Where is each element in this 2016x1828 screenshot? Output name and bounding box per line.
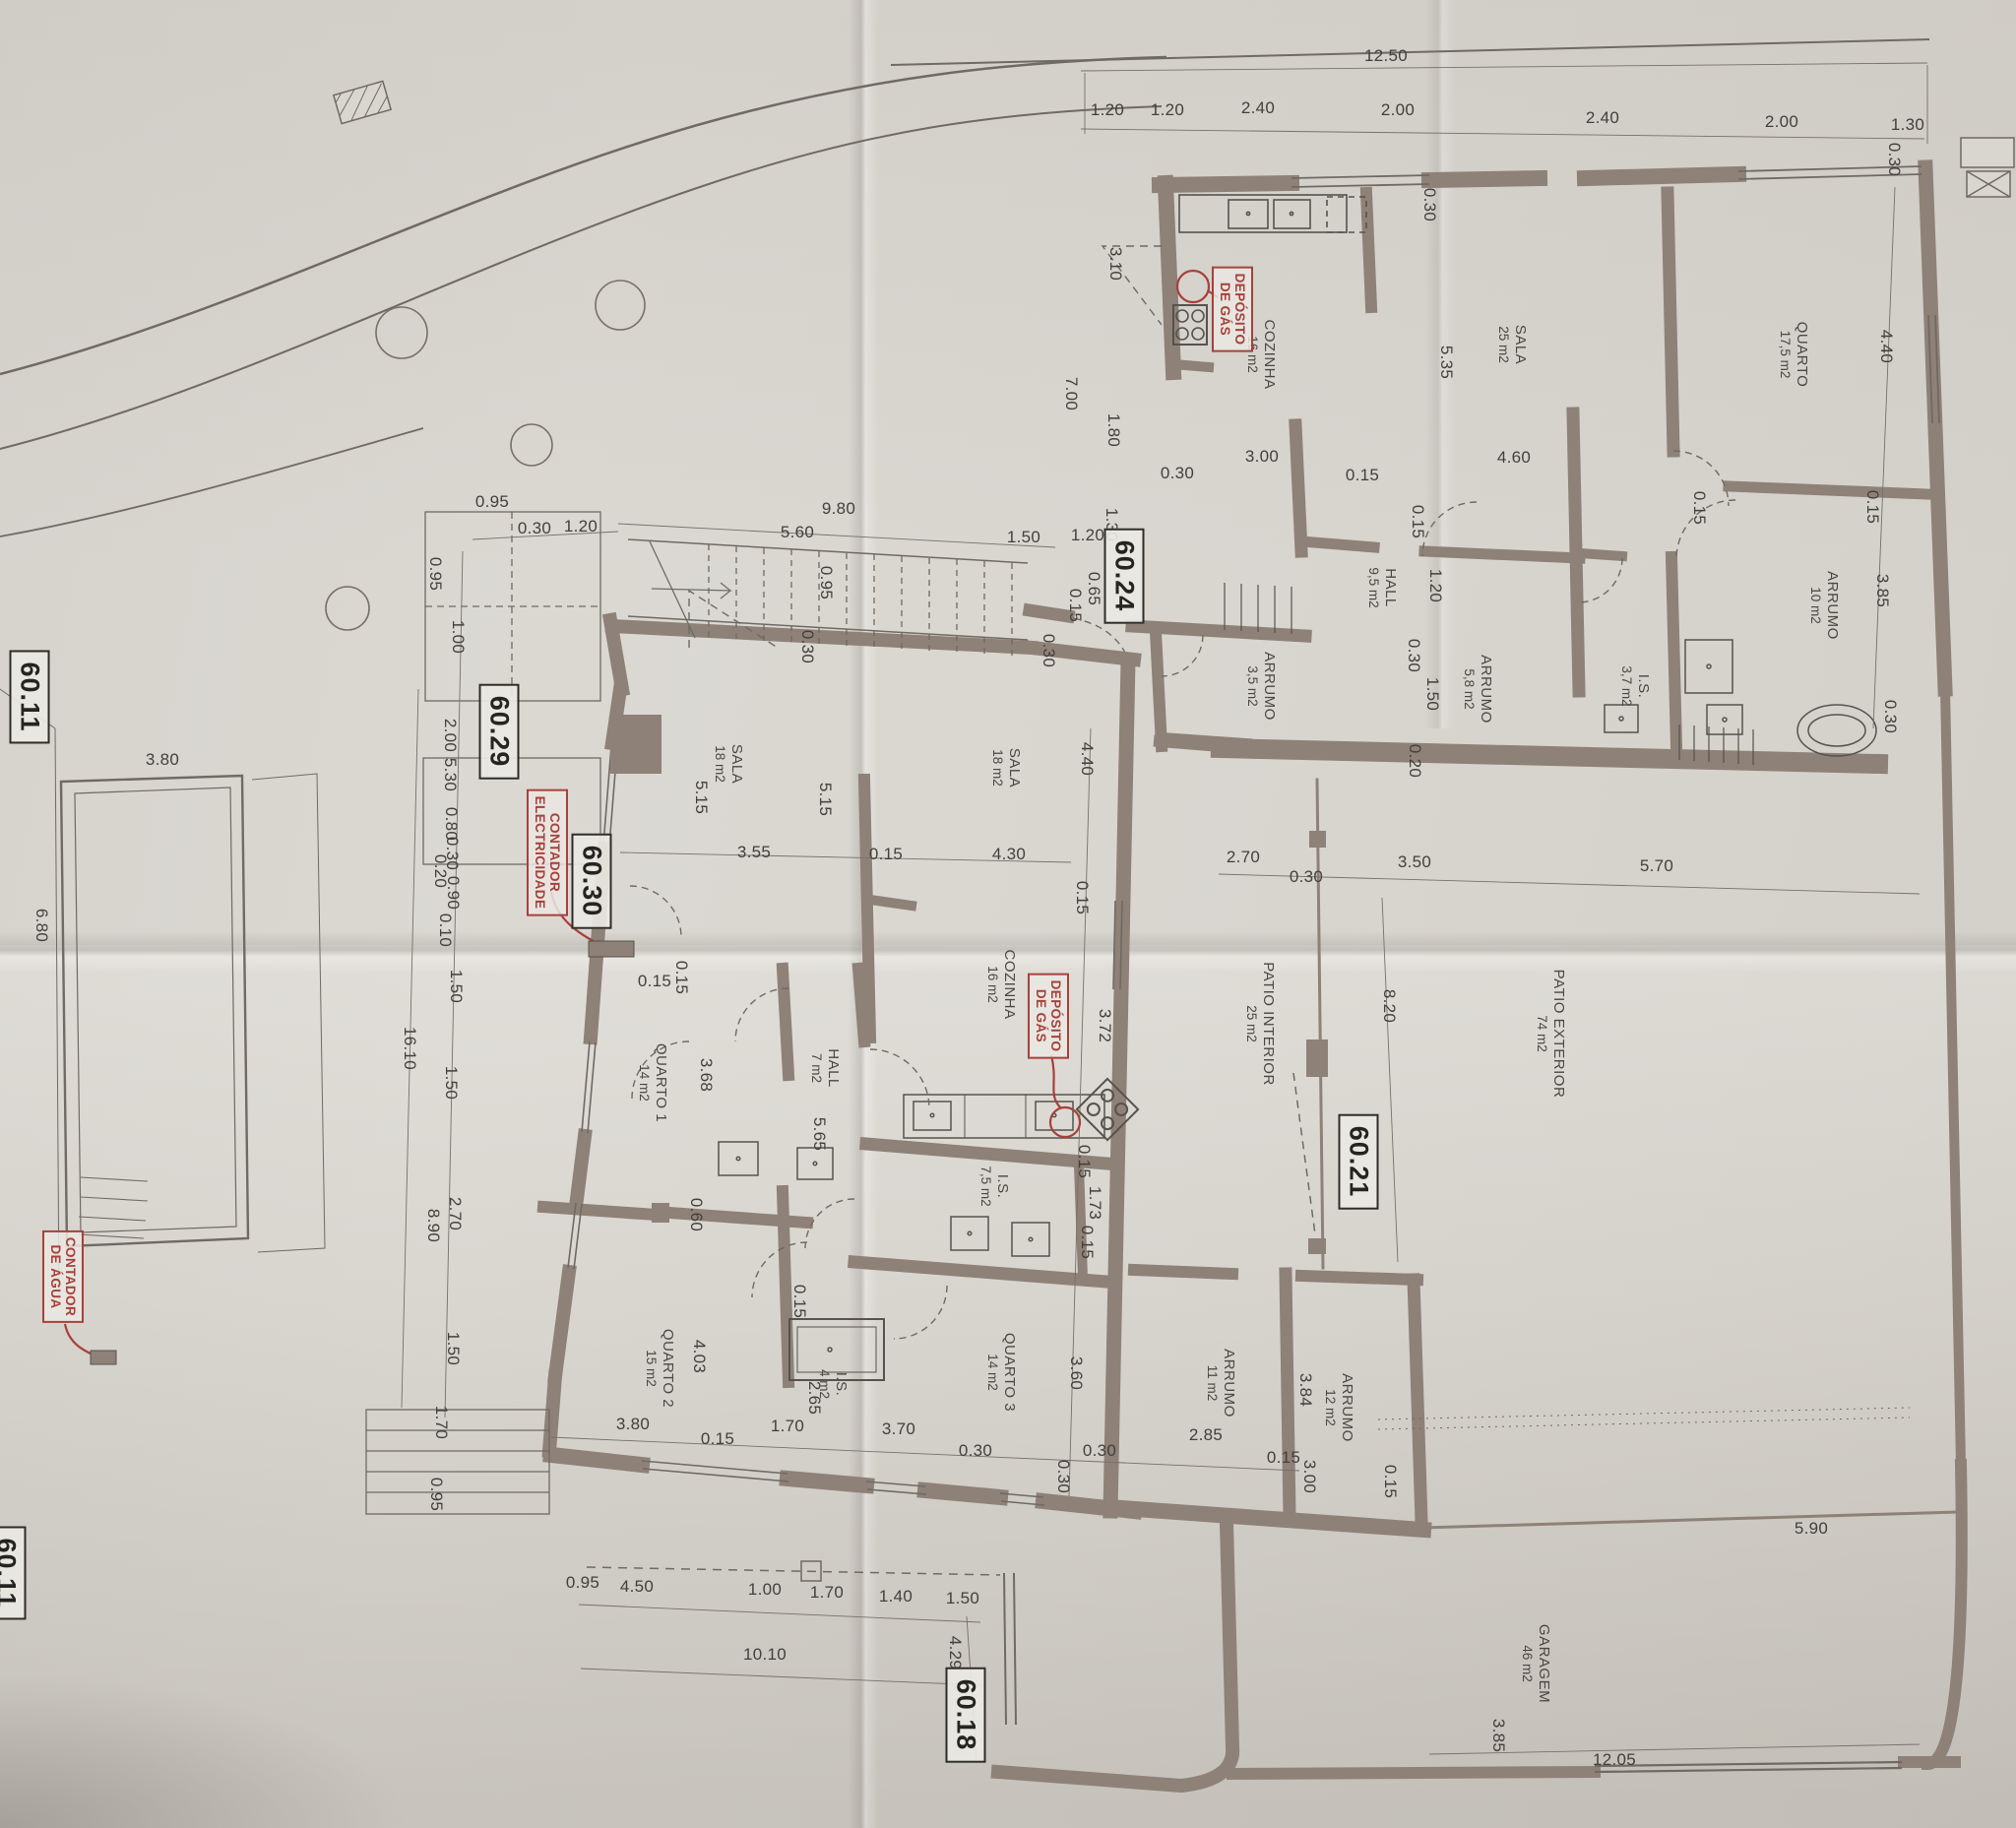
dimension-label: 2.40 xyxy=(1586,108,1619,128)
room-label-quarto: QUARTO17,5 m2 xyxy=(1777,322,1810,388)
room-area: 7 m2 xyxy=(808,1048,825,1088)
dimension-label: 1.50 xyxy=(946,1589,979,1608)
dimension-label: 0.30 xyxy=(797,630,817,663)
dimension-label: 16.10 xyxy=(400,1027,419,1070)
dimension-label: 0.15 xyxy=(1267,1448,1300,1468)
dimension-label: 9.80 xyxy=(822,499,855,519)
dimension-label: 0.15 xyxy=(1077,1226,1097,1259)
dimension-label: 1.40 xyxy=(879,1587,913,1607)
dimension-label: 0.20 xyxy=(1405,744,1424,778)
dimension-label: 3.85 xyxy=(1488,1719,1508,1752)
dimension-label: 0.95 xyxy=(425,557,445,591)
dimension-label: 0.30 xyxy=(1039,634,1058,667)
ref-marker-60-29: 60.29 xyxy=(479,684,520,780)
room-area: 18 m2 xyxy=(712,744,728,784)
red-annotation-contador-electricidade: CONTADORELECTRICIDADE xyxy=(527,789,568,916)
dimension-label: 0.15 xyxy=(1380,1465,1400,1498)
dimension-label: 0.15 xyxy=(869,845,903,864)
dimension-label: 1.50 xyxy=(443,1332,463,1365)
room-name: ARRUMO xyxy=(1339,1373,1355,1442)
room-label-arrumo: ARRUMO12 m2 xyxy=(1322,1373,1355,1442)
dimension-label: 0.30 xyxy=(1161,464,1194,483)
dimension-label: 3.85 xyxy=(1872,574,1892,607)
room-name: I.S. xyxy=(994,1166,1011,1206)
dimension-label: 3.72 xyxy=(1095,1009,1114,1042)
dimension-label: 0.60 xyxy=(686,1198,706,1231)
room-name: QUARTO 2 xyxy=(660,1329,676,1408)
dimension-label: 1.20 xyxy=(1091,100,1124,120)
dimension-label: 0.15 xyxy=(1074,1145,1094,1178)
room-area: 25 m2 xyxy=(1495,325,1512,364)
room-area: 18 m2 xyxy=(989,748,1006,788)
dimension-label: 10.10 xyxy=(743,1645,787,1665)
dimension-label: 0.30 xyxy=(1404,639,1423,672)
dimension-label: 3.55 xyxy=(737,843,771,862)
room-name: QUARTO 1 xyxy=(653,1043,669,1122)
room-area: 3,5 m2 xyxy=(1244,652,1261,721)
dimension-label: 1.00 xyxy=(748,1580,782,1600)
dimension-label: 5.35 xyxy=(1436,346,1456,379)
dimension-label: 3.70 xyxy=(882,1419,915,1439)
dimension-label: 0.15 xyxy=(1072,881,1092,914)
room-area: 3,7 m2 xyxy=(1618,665,1635,706)
room-name: SALA xyxy=(1512,325,1529,364)
dimension-label: 3.68 xyxy=(696,1058,716,1092)
dimension-label: 1.70 xyxy=(810,1583,844,1603)
room-label-garagem: GARAGEM46 m2 xyxy=(1519,1624,1552,1703)
red-annotation-line1: CONTADOR xyxy=(63,1237,78,1316)
room-name: I.S. xyxy=(1635,665,1652,706)
room-label-patio-exterior: PATIO EXTERIOR74 m2 xyxy=(1534,970,1567,1099)
dimension-label: 1.73 xyxy=(1085,1186,1104,1220)
room-label-quarto-2: QUARTO 215 m2 xyxy=(643,1329,676,1408)
room-label-hall: HALL9,5 m2 xyxy=(1365,567,1399,607)
room-area: 12 m2 xyxy=(1322,1373,1339,1442)
dimension-label: 1.80 xyxy=(1103,413,1123,447)
room-area: 14 m2 xyxy=(636,1043,653,1122)
room-label-sala: SALA25 m2 xyxy=(1495,325,1529,364)
dimension-label: 1.20 xyxy=(564,517,598,536)
dimension-label: 5.90 xyxy=(1795,1519,1828,1539)
room-label-sala: SALA18 m2 xyxy=(712,744,745,784)
room-label-arrumo: ARRUMO3,5 m2 xyxy=(1244,652,1278,721)
dimension-label: 0.65 xyxy=(1084,572,1103,605)
dimension-label: 0.15 xyxy=(1346,466,1379,485)
room-label-patio-interior: PATIO INTERIOR25 m2 xyxy=(1243,962,1277,1086)
dimension-label: 0.30 xyxy=(1053,1460,1073,1493)
dimension-label: 4.40 xyxy=(1077,742,1097,776)
dimension-label: 0.90 xyxy=(443,876,463,910)
dimension-label: 0.15 xyxy=(638,972,671,991)
dimension-label: 2.00 xyxy=(1381,100,1415,120)
dimension-label: 6.80 xyxy=(31,909,51,942)
dimension-label: 2.70 xyxy=(445,1197,465,1230)
dimension-label: 0.30 xyxy=(959,1441,992,1461)
room-area: 16 m2 xyxy=(984,950,1001,1020)
red-annotation-line2: DE ÁGUA xyxy=(48,1237,63,1316)
room-area: 9,5 m2 xyxy=(1365,567,1382,607)
room-label-quarto-1: QUARTO 114 m2 xyxy=(636,1043,669,1122)
ref-marker-60-11: 60.11 xyxy=(0,1526,27,1619)
dimension-label: 1.50 xyxy=(446,970,466,1003)
room-name: COZINHA xyxy=(1261,320,1278,390)
red-annotation-line2: DE GÁS xyxy=(1218,274,1232,346)
room-area: 4 m2 xyxy=(816,1369,833,1399)
dimension-label: 0.30 xyxy=(1083,1441,1116,1461)
room-label-quarto-3: QUARTO 314 m2 xyxy=(984,1333,1018,1412)
ref-marker-60-21: 60.21 xyxy=(1339,1114,1379,1210)
room-label-cozinha: COZINHA16 m2 xyxy=(984,950,1018,1020)
dimension-label: 3.00 xyxy=(1245,447,1279,467)
room-label-i-s: I.S.4 m2 xyxy=(816,1369,850,1399)
room-name: HALL xyxy=(825,1048,842,1088)
dimension-label: 4.40 xyxy=(1876,330,1896,363)
room-label-hall: HALL7 m2 xyxy=(808,1048,842,1088)
room-name: QUARTO xyxy=(1794,322,1810,388)
room-area: 14 m2 xyxy=(984,1333,1001,1412)
dimension-label: 5.60 xyxy=(781,523,814,542)
dimension-label: 3.10 xyxy=(1105,247,1125,281)
room-name: ARRUMO xyxy=(1824,571,1841,640)
dimension-label: 3.80 xyxy=(146,750,179,770)
dimension-label: 0.30 xyxy=(1290,867,1323,887)
dimension-label: 1.00 xyxy=(448,620,468,654)
dimension-label: 4.50 xyxy=(620,1577,654,1597)
dimension-label: 0.30 xyxy=(518,519,551,538)
room-name: ARRUMO xyxy=(1221,1349,1237,1418)
dimension-label: 4.30 xyxy=(992,845,1026,864)
dimension-label: 0.95 xyxy=(566,1573,599,1593)
room-name: ARRUMO xyxy=(1261,652,1278,721)
room-name: SALA xyxy=(1006,748,1023,788)
dimension-label: 5.65 xyxy=(809,1117,829,1151)
room-area: 7,5 m2 xyxy=(977,1166,994,1206)
dimension-label: 3.00 xyxy=(1299,1460,1319,1493)
room-name: ARRUMO xyxy=(1478,655,1494,724)
dimension-label: 5.15 xyxy=(691,781,711,814)
room-area: 46 m2 xyxy=(1519,1624,1536,1703)
dimension-label: 3.60 xyxy=(1066,1356,1086,1390)
room-label-sala: SALA18 m2 xyxy=(989,748,1023,788)
dimension-label: 3.80 xyxy=(616,1415,650,1434)
dimension-label: 0.30 xyxy=(1884,143,1904,176)
dimension-label: 1.50 xyxy=(441,1066,461,1100)
dimension-label: 0.15 xyxy=(1689,491,1709,525)
room-name: I.S. xyxy=(833,1369,850,1399)
dimension-label: 4.29 xyxy=(945,1636,965,1670)
dimension-label: 1.50 xyxy=(1007,528,1040,547)
dimension-label: 5.15 xyxy=(815,783,835,816)
dimension-label: 0.15 xyxy=(1065,589,1085,622)
dimension-label: 1.70 xyxy=(771,1417,804,1436)
room-label-arrumo: ARRUMO5,8 m2 xyxy=(1461,655,1494,724)
dimension-label: 3.84 xyxy=(1295,1373,1315,1407)
dimension-label: 8.20 xyxy=(1379,989,1399,1023)
ref-marker-60-24: 60.24 xyxy=(1104,529,1145,624)
red-annotation-line1: DEPÓSITO xyxy=(1232,274,1247,346)
dimension-label: 0.15 xyxy=(701,1429,734,1449)
red-annotation-line1: DEPÓSITO xyxy=(1048,980,1063,1052)
room-name: PATIO INTERIOR xyxy=(1260,962,1277,1086)
ref-marker-60-11: 60.11 xyxy=(10,650,50,743)
floorplan-sheet: 12.501.201.202.402.002.402.001.300.300.3… xyxy=(0,0,2016,1828)
room-area: 5,8 m2 xyxy=(1461,655,1478,724)
dimension-label: 0.15 xyxy=(1408,505,1427,538)
dimension-label: 2.85 xyxy=(1189,1425,1223,1445)
dimension-label: 0.95 xyxy=(475,492,509,512)
dimension-label: 1.20 xyxy=(1425,569,1445,602)
dimension-label: 1.30 xyxy=(1891,115,1924,135)
room-name: GARAGEM xyxy=(1536,1624,1552,1703)
red-annotation-line1: CONTADOR xyxy=(547,796,562,910)
dimension-label: 0.15 xyxy=(671,961,691,994)
room-area: 17,5 m2 xyxy=(1777,322,1794,388)
room-area: 25 m2 xyxy=(1243,962,1260,1086)
dimension-label: 0.15 xyxy=(1862,490,1882,524)
dimension-label: 0.95 xyxy=(816,566,836,599)
dimension-label: 5.30 xyxy=(440,758,460,791)
dimension-label: 0.15 xyxy=(789,1285,809,1318)
red-annotation-dep-sito-de-g-s: DEPÓSITODE GÁS xyxy=(1028,974,1069,1059)
labels-layer: 12.501.201.202.402.002.402.001.300.300.3… xyxy=(0,0,2016,1828)
red-annotation-contador-de-gua: CONTADORDE ÁGUA xyxy=(42,1230,84,1323)
red-annotation-line2: ELECTRICIDADE xyxy=(533,796,547,910)
room-label-i-s: I.S.7,5 m2 xyxy=(977,1166,1011,1206)
dimension-label: 3.50 xyxy=(1398,852,1431,872)
room-area: 10 m2 xyxy=(1807,571,1824,640)
red-annotation-line2: DE GÁS xyxy=(1034,980,1048,1052)
dimension-label: 2.00 xyxy=(440,719,460,752)
dimension-label: 1.20 xyxy=(1071,526,1104,545)
room-name: COZINHA xyxy=(1001,950,1018,1020)
dimension-label: 4.60 xyxy=(1497,448,1531,468)
dimension-label: 1.70 xyxy=(431,1406,451,1439)
dimension-label: 1.50 xyxy=(1422,677,1442,711)
dimension-label: 0.95 xyxy=(426,1478,446,1511)
dimension-label: 7.00 xyxy=(1061,377,1081,410)
dimension-label: 0.30 xyxy=(1880,700,1900,733)
dimension-label: 8.90 xyxy=(423,1209,443,1242)
red-annotation-dep-sito-de-g-s: DEPÓSITODE GÁS xyxy=(1212,267,1253,352)
room-area: 74 m2 xyxy=(1534,970,1550,1099)
dimension-label: 12.50 xyxy=(1364,46,1408,66)
dimension-label: 1.20 xyxy=(1151,100,1184,120)
room-area: 15 m2 xyxy=(643,1329,660,1408)
dimension-label: 0.10 xyxy=(435,914,455,947)
room-area: 11 m2 xyxy=(1204,1349,1221,1418)
room-name: PATIO EXTERIOR xyxy=(1550,970,1567,1099)
dimension-label: 0.30 xyxy=(1419,188,1439,221)
dimension-label: 2.00 xyxy=(1765,112,1798,132)
ref-marker-60-18: 60.18 xyxy=(946,1668,986,1763)
dimension-label: 12.05 xyxy=(1593,1750,1636,1770)
ref-marker-60-30: 60.30 xyxy=(572,834,612,929)
dimension-label: 4.03 xyxy=(689,1340,709,1373)
room-name: QUARTO 3 xyxy=(1001,1333,1018,1412)
dimension-label: 2.70 xyxy=(1227,848,1260,867)
dimension-label: 2.40 xyxy=(1241,98,1275,118)
room-name: HALL xyxy=(1382,567,1399,607)
room-name: SALA xyxy=(728,744,745,784)
room-label-i-s: I.S.3,7 m2 xyxy=(1618,665,1652,706)
room-label-arrumo: ARRUMO11 m2 xyxy=(1204,1349,1237,1418)
room-label-arrumo: ARRUMO10 m2 xyxy=(1807,571,1841,640)
dimension-label: 5.70 xyxy=(1640,856,1673,876)
